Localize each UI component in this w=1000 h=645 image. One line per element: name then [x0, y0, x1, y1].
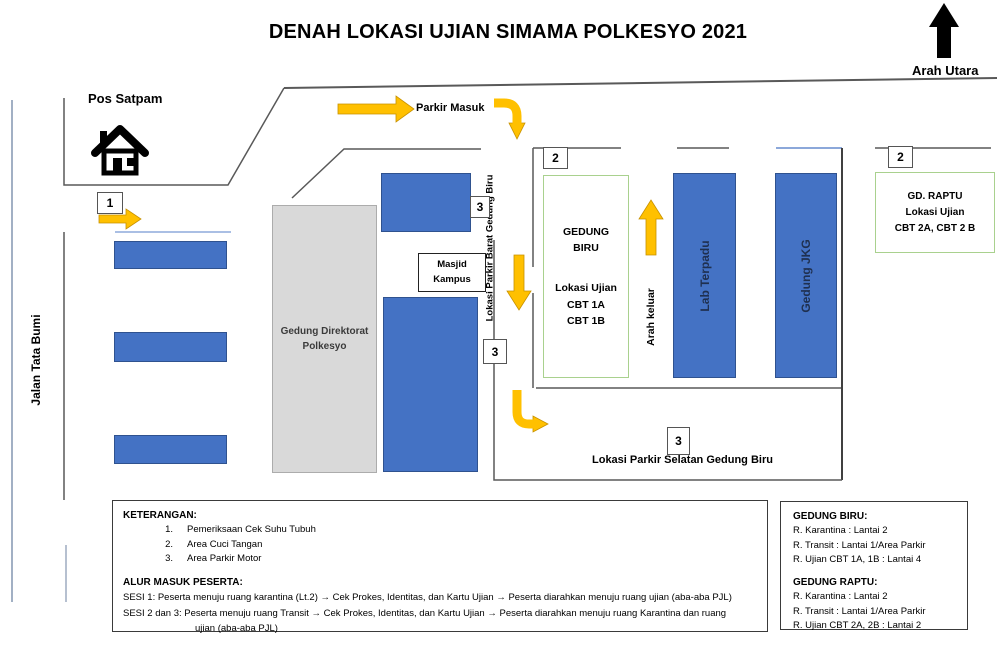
legend-item-number: 2. [151, 538, 173, 552]
arah-keluar-arrow-icon [639, 200, 663, 255]
south-elbow-arrowhead-icon [533, 416, 548, 432]
gedung-biru-label-line2: BIRU [555, 240, 617, 256]
legend-item-number: 1. [151, 523, 173, 537]
marker-3-parkir-barat-bawah: 3 [483, 339, 507, 364]
building-info-panel: GEDUNG BIRU: R. Karantina : Lantai 2 R. … [780, 501, 968, 630]
legend-item-number: 3. [151, 552, 173, 566]
info-biru-line: R. Karantina : Lantai 2 [793, 524, 955, 538]
building-gedung-biru: GEDUNG BIRU Lokasi Ujian CBT 1A CBT 1B [543, 175, 629, 378]
marker-1-entry: 1 [97, 192, 123, 214]
gd-raptu-label-line3: CBT 2A, CBT 2 B [895, 221, 976, 237]
info-raptu-line: R. Karantina : Lantai 2 [793, 590, 955, 604]
marker-2-gd-raptu: 2 [888, 146, 913, 168]
sesi2-continuation-text: ujian (aba-aba PJL) [123, 622, 757, 636]
pos-satpam-label: Pos Satpam [88, 91, 162, 106]
gedung-jkg-label: Gedung JKG [799, 239, 813, 312]
masjid-label-line2: Kampus [433, 273, 470, 287]
building-direktorat: Gedung Direktorat Polkesyo [272, 205, 377, 473]
west-parking-row [114, 241, 227, 269]
info-biru-line: R. Transit : Lantai 1/Area Parkir [793, 539, 955, 553]
masjid-label-line1: Masjid [433, 258, 470, 272]
house-icon [95, 129, 145, 173]
turn-down-arrow-icon [494, 103, 517, 125]
legend-item-text: Area Cuci Tangan [187, 538, 262, 552]
compass-label: Arah Utara [912, 63, 978, 78]
marker-3-parkir-barat-atas: 3 [470, 196, 490, 218]
legend-item-text: Pemeriksaan Cek Suhu Tubuh [187, 523, 316, 537]
arah-keluar-label: Arah keluar [645, 288, 657, 346]
legend-item-text: Area Parkir Motor [187, 552, 261, 566]
page-title: DENAH LOKASI UJIAN SIMAMA POLKESYO 2021 [8, 21, 1000, 44]
parkir-selatan-label: Lokasi Parkir Selatan Gedung Biru [592, 454, 773, 466]
building-blue-south-block [383, 297, 478, 472]
sesi1-text: SESI 1: Peserta menuju ruang karantina (… [123, 591, 757, 605]
legend-panel: KETERANGAN: 1. Pemeriksaan Cek Suhu Tubu… [112, 500, 768, 632]
info-raptu-title: GEDUNG RAPTU: [793, 577, 877, 588]
info-biru-title: GEDUNG BIRU: [793, 511, 867, 522]
gedung-biru-label-line1: GEDUNG [555, 224, 617, 240]
turn-down-arrowhead-icon [509, 123, 525, 139]
lab-terpadu-label: Lab Terpadu [698, 240, 712, 311]
west-parking-row [114, 435, 227, 464]
gedung-biru-label-line3: Lokasi Ujian [555, 280, 617, 296]
alur-title: ALUR MASUK PESERTA: [123, 577, 243, 588]
top-road-line [284, 78, 997, 88]
legend-item: 3. Area Parkir Motor [123, 552, 757, 566]
building-gd-raptu: GD. RAPTU Lokasi Ujian CBT 2A, CBT 2 B [875, 172, 995, 253]
parkir-masuk-arrow-icon [338, 96, 414, 122]
keterangan-title: KETERANGAN: [123, 510, 197, 521]
gd-raptu-label-line2: Lokasi Ujian [895, 205, 976, 221]
info-biru-line: R. Ujian CBT 1A, 1B : Lantai 4 [793, 553, 955, 567]
gedung-biru-label-line5: CBT 1B [555, 313, 617, 329]
legend-item: 1. Pemeriksaan Cek Suhu Tubuh [123, 523, 757, 537]
gedung-biru-label-line4: CBT 1A [555, 297, 617, 313]
jalan-tata-bumi-label: Jalan Tata Bumi [29, 314, 43, 405]
marker-2-gedung-biru: 2 [543, 147, 568, 169]
building-direktorat-label-line2: Polkesyo [281, 339, 369, 354]
building-blue-north-block [381, 173, 471, 232]
west-parking-row [114, 332, 227, 362]
gd-raptu-label-line1: GD. RAPTU [895, 189, 976, 205]
building-masjid: Masjid Kampus [418, 253, 486, 292]
parkir-masuk-label: Parkir Masuk [416, 102, 484, 114]
info-raptu-line: R. Transit : Lantai 1/Area Parkir [793, 605, 955, 619]
south-elbow-arrow-icon [517, 390, 534, 424]
legend-item: 2. Area Cuci Tangan [123, 538, 757, 552]
sesi2-text: SESI 2 dan 3: Peserta menuju ruang Trans… [123, 607, 757, 621]
campus-map: DENAH LOKASI UJIAN SIMAMA POLKESYO 2021 [0, 0, 1000, 645]
building-direktorat-label-line1: Gedung Direktorat [281, 324, 369, 339]
marker-3-parkir-selatan: 3 [667, 427, 690, 455]
info-raptu-line: R. Ujian CBT 2A, 2B : Lantai 2 [793, 619, 955, 633]
down-arrow-icon [507, 255, 531, 310]
